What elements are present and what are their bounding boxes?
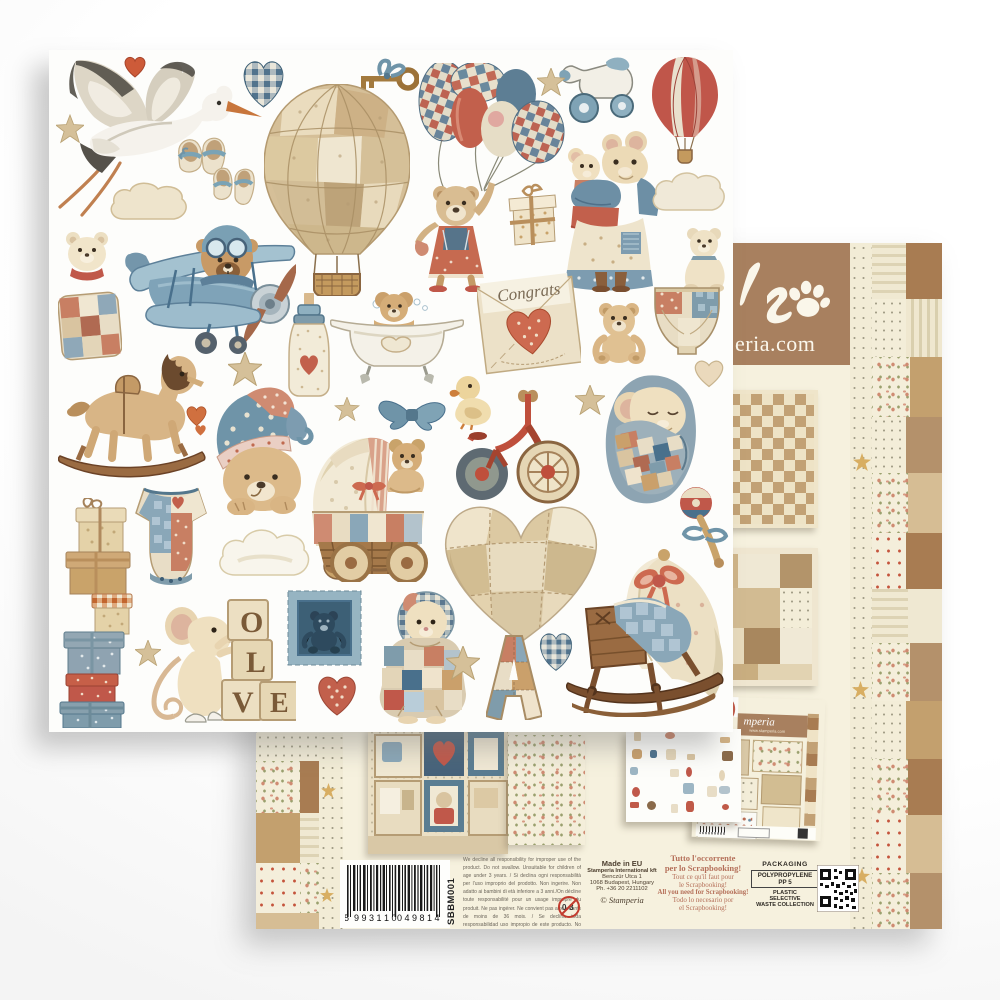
svg-text:5: 5 — [345, 913, 349, 923]
svg-text:V: V — [232, 686, 254, 719]
svg-text:0 4 9 8 1 4: 0 4 9 8 1 4 — [397, 913, 440, 923]
svg-text:O: O — [240, 606, 263, 639]
svg-text:E: E — [270, 688, 289, 719]
svg-text:9 9 3 1 1 0: 9 9 3 1 1 0 — [354, 913, 397, 923]
svg-text:L: L — [246, 646, 266, 679]
